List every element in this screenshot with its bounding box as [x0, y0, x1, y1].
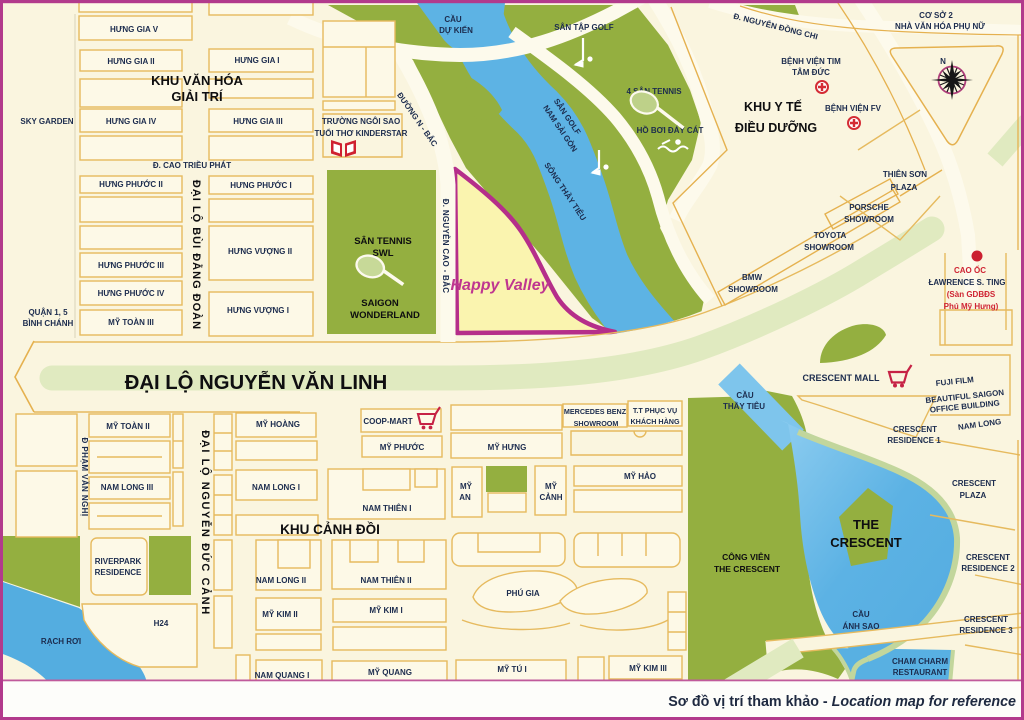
svg-text:HƯNG GIA II: HƯNG GIA II	[107, 57, 154, 66]
svg-text:N: N	[940, 57, 946, 66]
svg-text:Sơ đồ vị trí tham khảo - Locat: Sơ đồ vị trí tham khảo - Location map fo…	[668, 694, 1016, 710]
svg-text:KHU Y TẾ: KHU Y TẾ	[744, 99, 802, 114]
svg-text:MỸ HƯNG: MỸ HƯNG	[488, 443, 527, 452]
svg-text:WONDERLAND: WONDERLAND	[350, 310, 420, 321]
svg-text:PHÚ GIA: PHÚ GIA	[506, 589, 540, 598]
svg-text:SHOWROOM: SHOWROOM	[728, 285, 778, 294]
svg-text:DỰ KIẾN: DỰ KIẾN	[439, 25, 473, 35]
svg-text:THẦY TIÊU: THẦY TIÊU	[723, 401, 765, 411]
svg-text:PLAZA: PLAZA	[960, 491, 987, 500]
svg-text:NAM LONG II: NAM LONG II	[256, 576, 306, 585]
svg-text:THIÊN SƠN: THIÊN SƠN	[883, 170, 927, 179]
svg-text:CRESCENT: CRESCENT	[952, 479, 996, 488]
svg-text:CRESCENT: CRESCENT	[964, 615, 1008, 624]
svg-text:CẢNH: CẢNH	[539, 493, 562, 502]
svg-text:HƯNG GIA V: HƯNG GIA V	[110, 25, 159, 34]
svg-text:NAM QUANG I: NAM QUANG I	[255, 671, 310, 680]
svg-text:SKY GARDEN: SKY GARDEN	[20, 117, 73, 126]
svg-text:NHÀ VĂN HÓA PHỤ NỮ: NHÀ VĂN HÓA PHỤ NỮ	[895, 22, 985, 31]
svg-text:SHOWROOM: SHOWROOM	[844, 215, 894, 224]
svg-text:CRESCENT: CRESCENT	[966, 553, 1010, 562]
svg-text:(Sàn GDBĐS: (Sàn GDBĐS	[947, 290, 996, 299]
svg-text:RESIDENCE 3: RESIDENCE 3	[959, 626, 1013, 635]
svg-text:MỸ KIM II: MỸ KIM II	[262, 610, 298, 619]
svg-text:SHOWROOM: SHOWROOM	[574, 419, 619, 428]
svg-text:MỸ HẢO: MỸ HẢO	[624, 472, 656, 481]
svg-text:HƯNG VƯỢNG I: HƯNG VƯỢNG I	[227, 306, 289, 315]
svg-text:PORSCHE: PORSCHE	[849, 203, 889, 212]
svg-text:RESIDENCE 1: RESIDENCE 1	[887, 436, 941, 445]
svg-text:H24: H24	[154, 619, 169, 628]
svg-text:CHAM CHARM: CHAM CHARM	[892, 657, 948, 666]
svg-text:HỒ BƠI ĐÁY CÁT: HỒ BƠI ĐÁY CÁT	[637, 125, 704, 135]
svg-text:NAM THIÊN I: NAM THIÊN I	[363, 504, 412, 513]
svg-text:MỸ HOÀNG: MỸ HOÀNG	[256, 420, 300, 429]
svg-text:CRESCENT: CRESCENT	[893, 425, 937, 434]
svg-text:SÂN TẬP GOLF: SÂN TẬP GOLF	[554, 23, 614, 32]
svg-text:T.T PHỤC VỤ: T.T PHỤC VỤ	[633, 406, 677, 415]
svg-text:NAM THIÊN II: NAM THIÊN II	[360, 576, 411, 585]
svg-text:MERCEDES BENZ: MERCEDES BENZ	[564, 407, 627, 416]
svg-text:SÂN TENNIS: SÂN TENNIS	[354, 235, 412, 247]
svg-text:CƠ SỞ 2: CƠ SỞ 2	[919, 11, 953, 20]
svg-text:PLAZA: PLAZA	[891, 183, 918, 192]
svg-text:BỆNH VIỆN TIM: BỆNH VIỆN TIM	[781, 57, 841, 66]
svg-text:TUỔI THƠ KINDERSTAR: TUỔI THƠ KINDERSTAR	[315, 129, 408, 138]
svg-text:CẦU: CẦU	[444, 14, 462, 24]
svg-text:HƯNG PHƯỚC II: HƯNG PHƯỚC II	[99, 180, 163, 189]
svg-text:TÂM ĐỨC: TÂM ĐỨC	[792, 68, 830, 77]
svg-text:CÔNG VIÊN: CÔNG VIÊN	[722, 551, 770, 562]
svg-text:Happy Valley: Happy Valley	[450, 277, 550, 294]
svg-text:RESIDENCE 2: RESIDENCE 2	[961, 564, 1015, 573]
svg-text:CẦU: CẦU	[736, 390, 754, 400]
svg-text:MỸ PHƯỚC: MỸ PHƯỚC	[380, 443, 425, 452]
svg-text:CRESCENT: CRESCENT	[830, 535, 902, 550]
svg-text:MỸ: MỸ	[545, 482, 558, 491]
svg-text:ĐIỀU DƯỠNG: ĐIỀU DƯỠNG	[735, 120, 817, 135]
svg-text:HƯNG GIA I: HƯNG GIA I	[234, 56, 279, 65]
svg-text:CRESCENT MALL: CRESCENT MALL	[803, 373, 880, 383]
svg-text:SAIGON: SAIGON	[361, 298, 399, 309]
svg-text:BÌNH CHÁNH: BÌNH CHÁNH	[23, 319, 74, 328]
svg-text:AN: AN	[459, 493, 471, 502]
svg-text:HƯNG PHƯỚC I: HƯNG PHƯỚC I	[230, 181, 291, 190]
svg-text:TOYOTA: TOYOTA	[814, 231, 847, 240]
svg-text:HƯNG PHƯỚC IV: HƯNG PHƯỚC IV	[98, 289, 165, 298]
svg-text:SHOWROOM: SHOWROOM	[804, 243, 854, 252]
svg-text:MỸ: MỸ	[460, 482, 473, 491]
svg-text:KHU CẢNH ĐỒI: KHU CẢNH ĐỒI	[280, 522, 380, 537]
svg-text:RẠCH RƠI: RẠCH RƠI	[41, 637, 81, 646]
svg-text:NAM LONG I: NAM LONG I	[252, 483, 300, 492]
svg-text:GIẢI TRÍ: GIẢI TRÍ	[171, 89, 223, 104]
svg-text:KHÁCH HÀNG: KHÁCH HÀNG	[630, 417, 680, 426]
svg-text:HƯNG VƯỢNG II: HƯNG VƯỢNG II	[228, 247, 292, 256]
svg-text:KHU VĂN HÓA: KHU VĂN HÓA	[151, 73, 243, 88]
svg-text:THE: THE	[853, 517, 879, 532]
svg-text:ĐẠI LỘ NGUYỄN ĐỨC CẢNH: ĐẠI LỘ NGUYỄN ĐỨC CẢNH	[199, 430, 212, 616]
svg-text:MỸ KIM III: MỸ KIM III	[629, 664, 667, 673]
svg-text:MỸ TOÀN III: MỸ TOÀN III	[108, 318, 154, 327]
svg-text:NAM LONG III: NAM LONG III	[101, 483, 153, 492]
svg-text:ÁNH SAO: ÁNH SAO	[843, 622, 880, 631]
svg-text:ĐẠI LỘ BÙI ĐẰNG ĐOÀN: ĐẠI LỘ BÙI ĐẰNG ĐOÀN	[190, 180, 203, 330]
svg-text:TRƯỜNG NGÔI SAO: TRƯỜNG NGÔI SAO	[322, 117, 400, 126]
svg-text:HƯNG GIA III: HƯNG GIA III	[233, 117, 282, 126]
svg-text:ŁAWRENCE S. TING: ŁAWRENCE S. TING	[929, 278, 1006, 287]
svg-text:Phú Mỹ Hưng): Phú Mỹ Hưng)	[944, 302, 999, 311]
svg-text:Đ PHẠM VĂN NGHỊ: Đ PHẠM VĂN NGHỊ	[80, 438, 89, 517]
svg-text:BMW: BMW	[742, 273, 762, 282]
svg-text:Đ. NGUYỄN CAO - BẮC: Đ. NGUYỄN CAO - BẮC	[441, 199, 450, 294]
svg-text:HƯNG GIA IV: HƯNG GIA IV	[106, 117, 157, 126]
svg-text:BỆNH VIỆN FV: BỆNH VIỆN FV	[825, 104, 882, 113]
svg-text:MỸ TÚ I: MỸ TÚ I	[497, 665, 526, 674]
svg-text:COOP-MART: COOP-MART	[363, 417, 412, 426]
svg-text:RESTAURANT: RESTAURANT	[893, 668, 948, 677]
svg-text:RESIDENCE: RESIDENCE	[95, 568, 142, 577]
svg-text:ĐẠI LỘ NGUYỄN VĂN LINH: ĐẠI LỘ NGUYỄN VĂN LINH	[125, 370, 388, 394]
svg-text:QUẬN 1, 5: QUẬN 1, 5	[28, 308, 68, 317]
svg-text:CẦU: CẦU	[852, 609, 870, 619]
svg-text:MỸ QUANG: MỸ QUANG	[368, 668, 412, 677]
svg-text:HƯNG PHƯỚC III: HƯNG PHƯỚC III	[98, 261, 164, 270]
svg-text:MỸ KIM I: MỸ KIM I	[369, 606, 402, 615]
svg-text:MỸ TOÀN II: MỸ TOÀN II	[106, 422, 149, 431]
svg-text:Đ. CAO TRIỀU PHÁT: Đ. CAO TRIỀU PHÁT	[153, 160, 231, 170]
svg-text:RIVERPARK: RIVERPARK	[95, 557, 142, 566]
svg-text:CAO ỐC: CAO ỐC	[954, 265, 986, 275]
svg-text:THE CRESCENT: THE CRESCENT	[714, 564, 781, 574]
